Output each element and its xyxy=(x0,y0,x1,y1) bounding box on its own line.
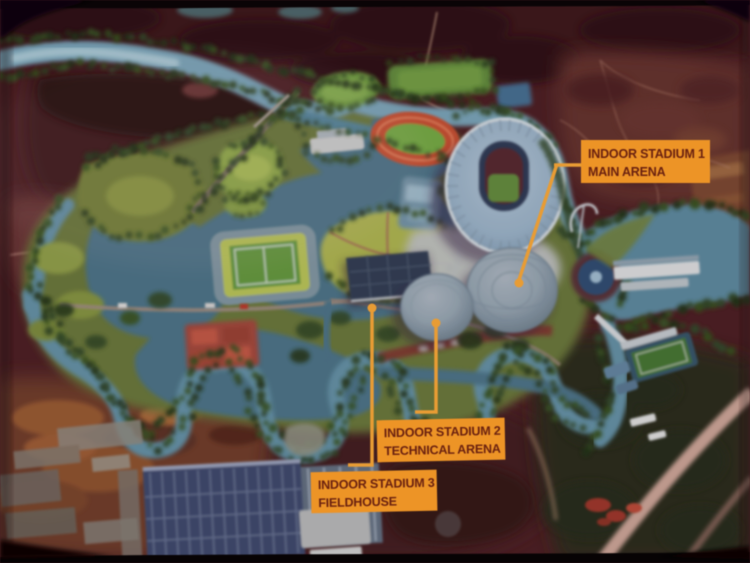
svg-text:INDOOR STADIUM 3: INDOOR STADIUM 3 xyxy=(318,476,435,492)
svg-text:INDOOR STADIUM 2: INDOOR STADIUM 2 xyxy=(384,424,501,440)
svg-text:FIELDHOUSE: FIELDHOUSE xyxy=(318,495,397,511)
svg-text:TECHNICAL ARENA: TECHNICAL ARENA xyxy=(384,442,501,458)
svg-text:MAIN ARENA: MAIN ARENA xyxy=(588,165,666,179)
svg-text:INDOOR STADIUM 1: INDOOR STADIUM 1 xyxy=(588,147,705,161)
